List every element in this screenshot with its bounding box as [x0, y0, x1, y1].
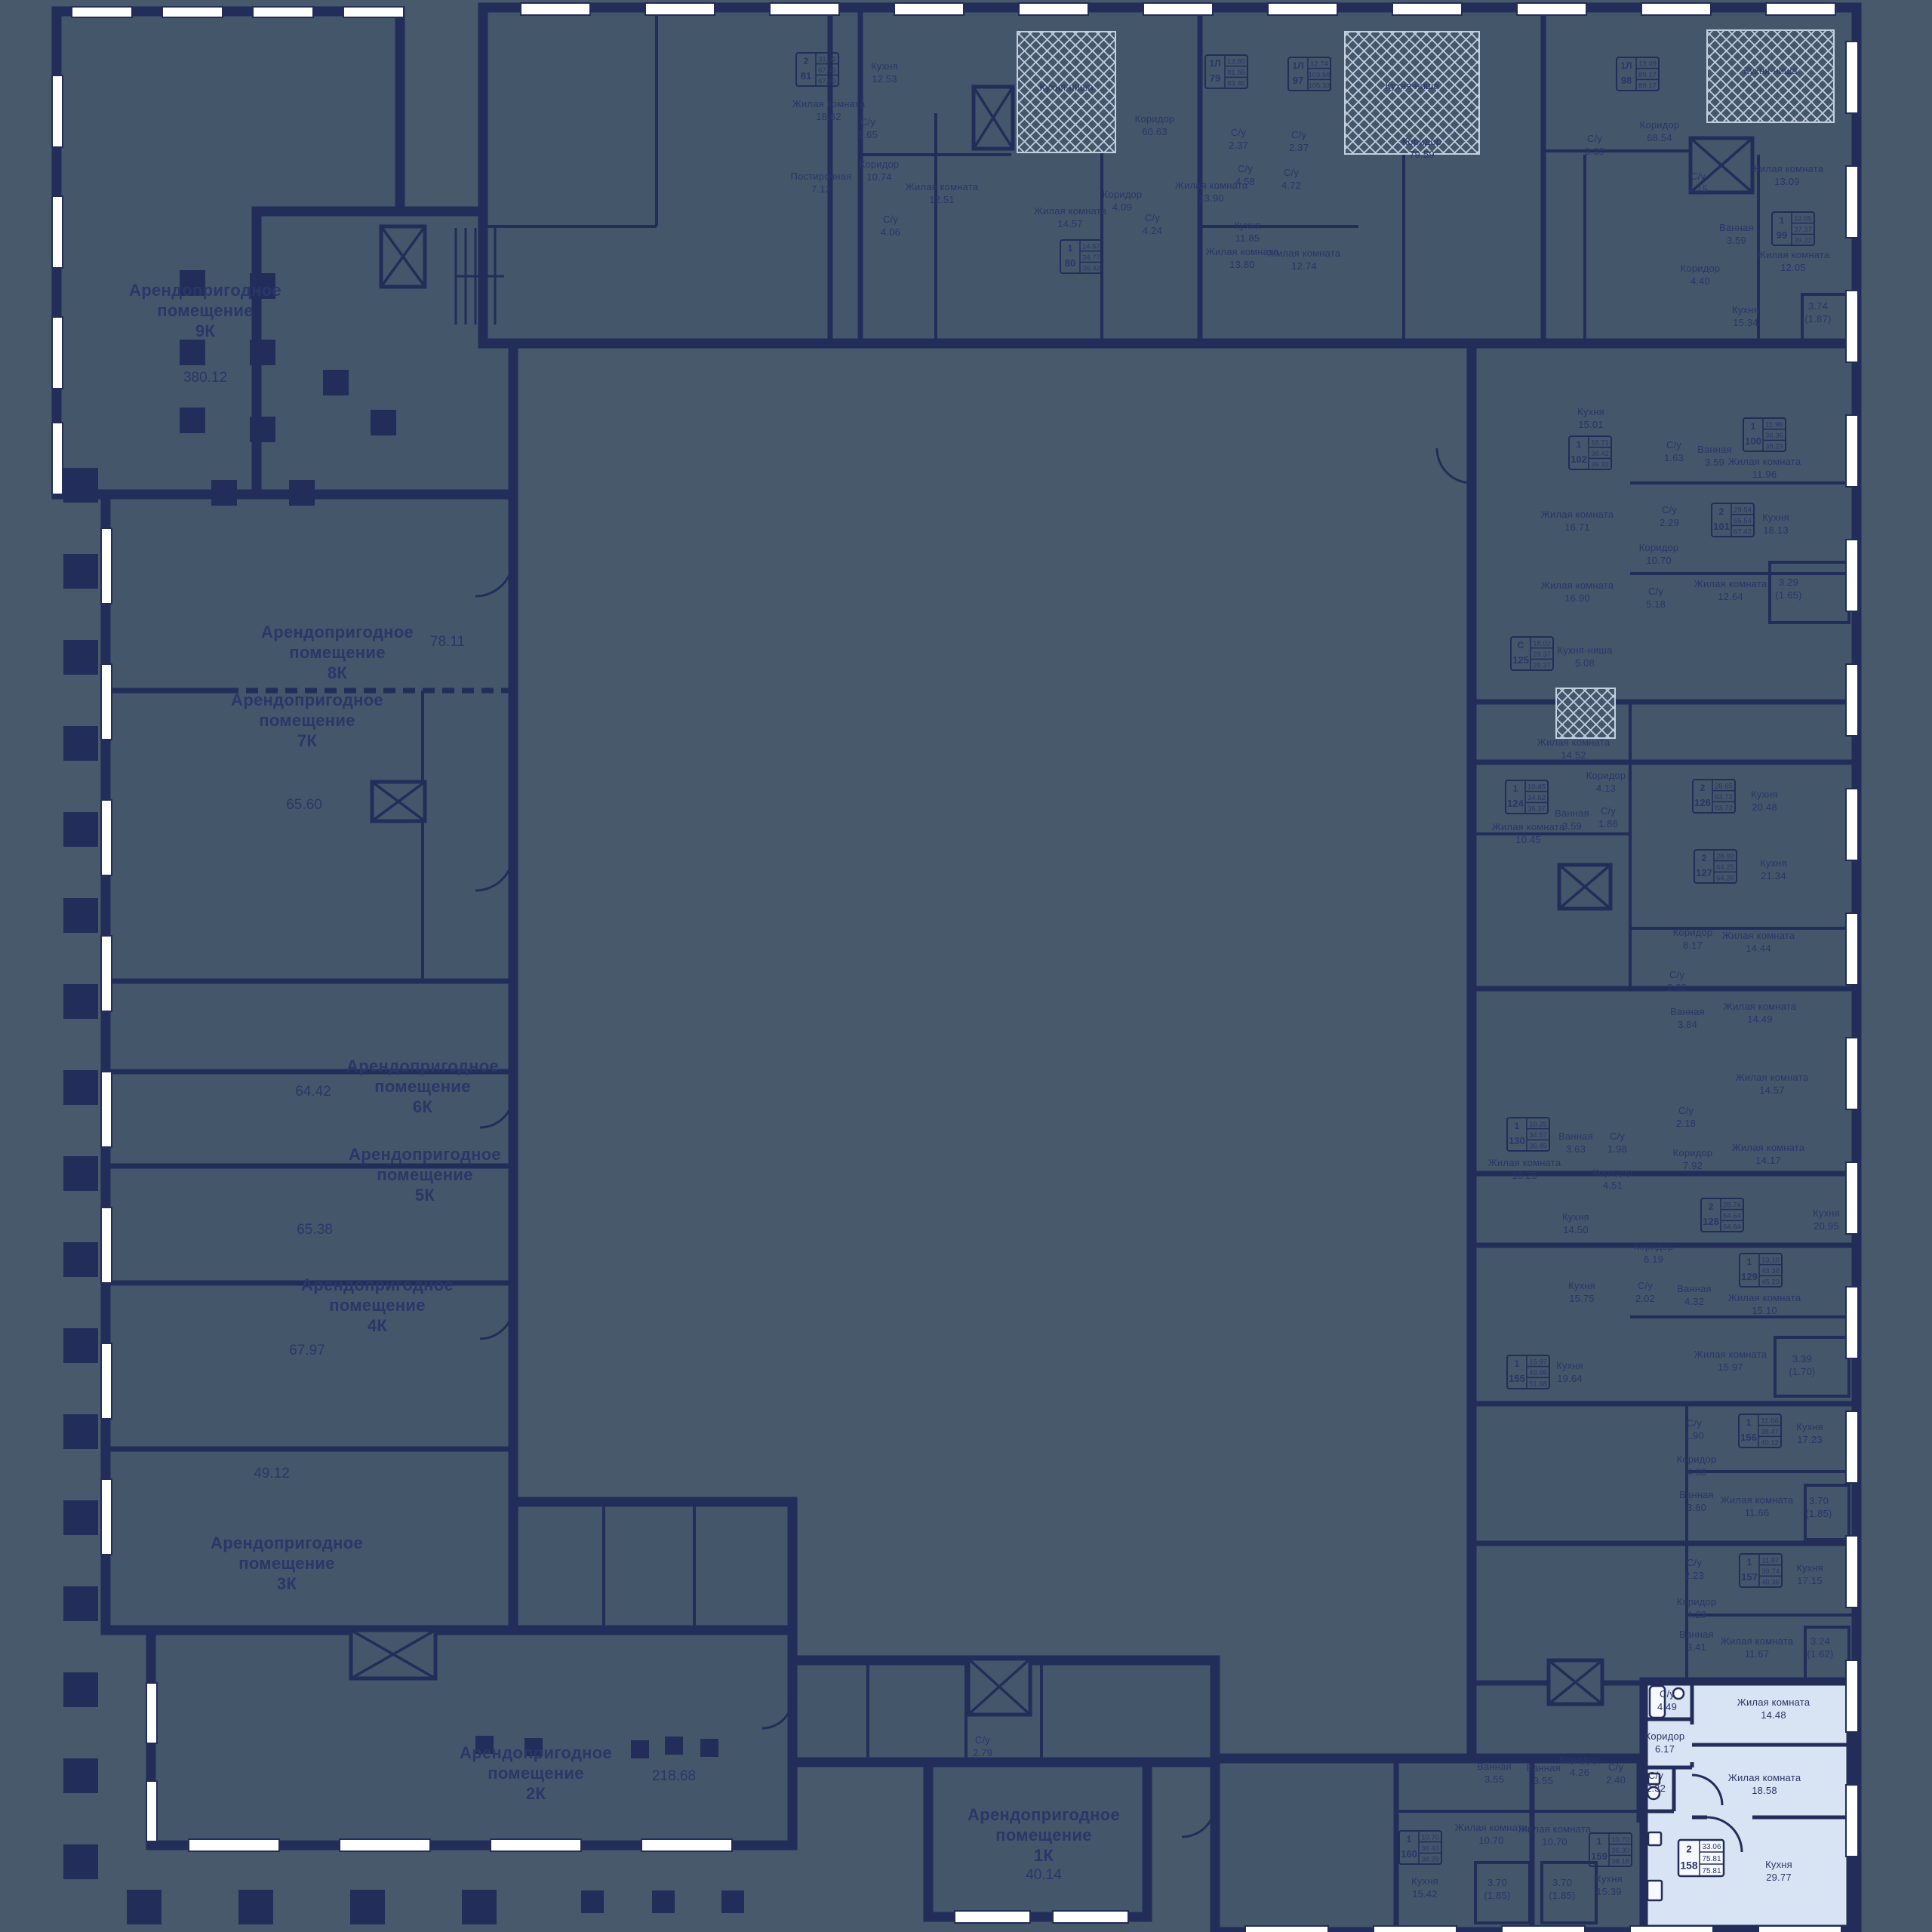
rentable-area: 40.14 — [1026, 1867, 1062, 1883]
room-area: 4.29 — [1687, 1609, 1706, 1620]
room-area: 18.13 — [1763, 525, 1789, 536]
apartment-number: 81 — [801, 70, 811, 82]
room-name: Коридор — [860, 158, 900, 170]
window — [1846, 789, 1858, 860]
apartment-area-2: 65.54 — [1734, 517, 1752, 525]
room-area: (1.87) — [1804, 313, 1831, 325]
room-area: 4.26 — [1570, 1767, 1589, 1778]
room-area: 2.23 — [1684, 1570, 1704, 1581]
room-area: 4.09 — [1112, 202, 1132, 213]
room-area: 1.98 — [1607, 1143, 1627, 1155]
window — [955, 1911, 1030, 1923]
room-area: 15.10 — [1752, 1305, 1777, 1316]
rentable-area: 218.68 — [652, 1768, 696, 1784]
apartment-rooms-count: 1 — [1513, 783, 1518, 794]
room-name: Жилая комната — [1722, 930, 1795, 941]
apartment-area-1: 28.92 — [1716, 852, 1734, 860]
room-area: 4.58 — [1235, 176, 1255, 187]
structural-column — [250, 417, 275, 442]
rentable-line2: помещение — [374, 1077, 471, 1096]
room-name: Жилая комната — [1541, 509, 1614, 520]
room-name: Жилая комната — [1537, 737, 1611, 748]
window — [770, 3, 839, 15]
window — [162, 7, 223, 17]
apartment-area-1: 12.05 — [1794, 214, 1812, 223]
room-area: 5.18 — [1646, 598, 1666, 610]
window — [101, 664, 112, 740]
room-name: Ванная — [1555, 808, 1589, 819]
rentable-line1: Арендопригодное — [968, 1805, 1120, 1824]
room-name: 3.70 — [1487, 1877, 1507, 1888]
apartment-rooms-count: 1 — [1747, 1257, 1752, 1267]
room-area: (1.70) — [1789, 1366, 1815, 1377]
apartment-area-2: 38.42 — [1591, 450, 1609, 458]
structural-column — [63, 1844, 98, 1879]
rentable-line1: Арендопригодное — [211, 1534, 363, 1552]
room-area: 2.40 — [1606, 1774, 1626, 1786]
room-area: 10.70 — [1478, 1835, 1504, 1846]
room-area: 10.25 — [1512, 1170, 1537, 1181]
room-area: 1.65 — [858, 129, 878, 140]
apartment-rooms-count: С — [1518, 640, 1524, 651]
floor-plan-svg: Кухня-нишаКухня-нишаКухня-ниша Кухня12.5… — [0, 0, 1932, 1932]
window — [52, 75, 63, 147]
apartment-rooms-count: 1 — [1515, 1358, 1520, 1369]
window — [1245, 1926, 1328, 1932]
room-area: 12.53 — [872, 73, 897, 85]
room-name: С/у — [975, 1734, 990, 1746]
apartment-card-158[interactable]: 215833.0675.8175.81 — [1678, 1840, 1724, 1876]
window — [189, 1839, 279, 1851]
structural-column — [63, 640, 98, 675]
room-name: Ванная — [1719, 222, 1754, 233]
room-area: 17.15 — [1797, 1575, 1823, 1586]
room-name: С/у — [1610, 1131, 1625, 1142]
room-name: С/у — [1660, 1688, 1675, 1700]
sink-icon — [1673, 1688, 1684, 1699]
rentable-line2: помещение — [259, 711, 355, 730]
room-name: Жилая комната — [1728, 1772, 1801, 1783]
apartment-area-1: 14.57 — [1082, 242, 1100, 251]
structural-column — [63, 1328, 98, 1363]
room-area: 3.63 — [1566, 1143, 1586, 1155]
window — [343, 7, 404, 17]
apartment-area-1: 31.33 — [818, 55, 836, 63]
window — [101, 1343, 112, 1419]
room-area: 14.52 — [1561, 749, 1586, 761]
room-area: 14.49 — [1747, 1014, 1773, 1025]
room-area: 3.60 — [1687, 1502, 1706, 1513]
room-name: Ванная — [1477, 1761, 1512, 1772]
rentable-area: 67.97 — [289, 1343, 325, 1358]
room-name: Кухня — [1765, 1859, 1792, 1870]
apartment-area-1: 13.09 — [1638, 60, 1657, 68]
structural-column — [63, 726, 98, 761]
window — [1766, 3, 1835, 15]
room-area: 15.01 — [1578, 419, 1604, 430]
room-area: 6.17 — [1655, 1743, 1675, 1755]
apartment-area-2: 37.37 — [1794, 226, 1812, 234]
window — [1846, 42, 1858, 113]
apartment-area-1: 11.96 — [1765, 420, 1783, 429]
room-area: 4.40 — [1690, 275, 1710, 287]
room-name: С/у — [1238, 163, 1253, 174]
window — [1846, 415, 1858, 487]
rentable-unit: 9К — [195, 321, 216, 340]
window — [1630, 1926, 1713, 1932]
window — [1641, 3, 1711, 15]
apartment-number: 97 — [1293, 75, 1303, 86]
window — [101, 1072, 112, 1147]
room-area: 18.62 — [816, 111, 841, 122]
room-name: Кухня — [1751, 789, 1778, 800]
room-name: Коридор — [1640, 119, 1680, 131]
rentable-line2: помещение — [289, 643, 386, 662]
apartment-area-3: 40.12 — [1761, 1439, 1779, 1447]
room-name: Коридор — [1560, 1754, 1600, 1765]
room-name: Жилая комната — [1757, 249, 1830, 260]
apartment-number: 79 — [1210, 72, 1220, 84]
structural-column — [63, 1414, 98, 1449]
room-name: Кухня — [1234, 220, 1261, 231]
rentable-area: 65.38 — [297, 1222, 333, 1238]
room-name: Коридор — [1673, 927, 1713, 938]
room-area: 16.71 — [1564, 521, 1590, 533]
apartment-area-1: 10.45 — [1527, 783, 1546, 791]
room-name: Жилая комната — [1751, 163, 1824, 174]
window — [1846, 1038, 1858, 1109]
window — [101, 800, 112, 875]
room-name: Кухня — [1577, 406, 1604, 417]
apartment-area-3: 67.43 — [818, 78, 836, 86]
window — [101, 1207, 112, 1283]
room-name: Кухня — [1762, 512, 1789, 523]
room-name: 3.24 — [1810, 1635, 1830, 1647]
apartment-number: 156 — [1740, 1432, 1757, 1443]
rentable-unit: 1К — [1034, 1846, 1054, 1865]
apartment-number: 160 — [1401, 1848, 1417, 1860]
window — [101, 936, 112, 1011]
apartment-area-3: 105.33 — [1308, 82, 1330, 91]
window — [1758, 1926, 1841, 1932]
room-area: 1.86 — [1598, 818, 1618, 829]
apartment-area-3: 64.64 — [1723, 1223, 1741, 1232]
apartment-area-2: 34.62 — [1527, 794, 1546, 802]
apartment-area-2: 64.25 — [1716, 863, 1734, 872]
apartment-area-1: 10.70 — [1421, 1833, 1439, 1841]
structural-column — [250, 340, 275, 365]
apartment-rooms-count: 2 — [1702, 853, 1707, 863]
apartment-rooms-count: 2 — [804, 56, 809, 66]
room-area: 11.85 — [1235, 232, 1260, 244]
room-name: Кухня — [1732, 304, 1759, 315]
apartment-area-3: 64.26 — [1716, 875, 1734, 883]
apartment-area-2: 34.77 — [1082, 254, 1100, 262]
room-name: С/у — [1231, 127, 1246, 138]
room-area: 3.55 — [1484, 1774, 1504, 1785]
rentable-unit: 8К — [328, 663, 348, 682]
window — [101, 528, 112, 604]
room-name: Ванная — [1558, 1131, 1593, 1142]
apartment-number: 157 — [1741, 1571, 1758, 1583]
apartment-area-3: 45.23 — [1761, 1278, 1780, 1287]
rentable-line1: Арендопригодное — [301, 1275, 454, 1294]
room-name: С/у — [1587, 133, 1602, 144]
window — [253, 7, 313, 17]
room-name: Жилая комната — [1268, 248, 1341, 259]
window — [1374, 1926, 1457, 1932]
room-area: 4.32 — [1684, 1296, 1704, 1307]
room-name: Ванная — [1697, 444, 1732, 455]
room-name: Ванная — [1526, 1762, 1561, 1774]
window — [340, 1839, 430, 1851]
room-name: 3.70 — [1809, 1495, 1829, 1506]
rentable-line2: помещение — [157, 301, 254, 320]
room-area: 19.64 — [1557, 1373, 1583, 1384]
room-name: Жилая комната — [1034, 205, 1107, 217]
window — [52, 423, 63, 494]
room-area: 10.74 — [866, 171, 892, 183]
room-name: Коридор — [1103, 189, 1143, 200]
apartment-area-3: 36.37 — [1527, 805, 1546, 814]
apartment-number: 124 — [1507, 798, 1524, 809]
room-area: 10.70 — [1542, 1836, 1567, 1847]
apartment-rooms-count: 1 — [1780, 215, 1785, 226]
rentable-line2: помещение — [995, 1826, 1092, 1844]
structural-column — [665, 1737, 683, 1755]
room-area: 14.17 — [1755, 1155, 1781, 1166]
kitchen-niche-hatch — [1556, 688, 1615, 738]
room-name: Ванная — [1679, 1489, 1714, 1500]
room-area: 7.92 — [1683, 1160, 1703, 1171]
room-name: Коридор — [1681, 263, 1721, 274]
room-area: 60.63 — [1142, 126, 1168, 137]
room-name: Коридор — [1677, 1454, 1717, 1465]
apartment-area-3: 36.42 — [1082, 265, 1100, 273]
room-area: 12.05 — [1780, 262, 1806, 273]
rentable-line1: Арендопригодное — [231, 691, 383, 709]
room-name: 3.74 — [1808, 300, 1828, 312]
room-area: 7.12 — [811, 183, 831, 195]
rentable-area: 380.12 — [183, 370, 227, 386]
rentable-line2: помещение — [488, 1764, 584, 1783]
rentable-line2: помещение — [329, 1296, 426, 1315]
structural-column — [371, 410, 396, 435]
apartment-rooms-count: 1 — [1597, 1836, 1602, 1847]
room-area: 4.06 — [881, 226, 900, 238]
kitchen-niche-label: Кухня-ниша — [1743, 65, 1798, 76]
kitchen-niche-label: Кухня-ниша — [1385, 80, 1439, 91]
structural-column — [63, 1500, 98, 1535]
room-name: Жилая комната — [1721, 1635, 1794, 1647]
room-area: 5.08 — [1575, 657, 1595, 669]
room-name: Жилая комната — [1732, 1142, 1805, 1153]
room-name: Кухня-ниша — [1557, 645, 1613, 656]
window — [1846, 1411, 1858, 1483]
room-name: С/у — [1291, 129, 1306, 140]
room-name: Коридор — [1593, 1167, 1633, 1178]
apartment-number: 98 — [1621, 75, 1632, 86]
room-area: 3.35 — [1585, 146, 1604, 157]
rentable-area: 64.42 — [295, 1084, 331, 1100]
window — [1019, 3, 1088, 15]
apartment-area-3: 63.72 — [1715, 804, 1733, 813]
apartment-rooms-count: 1 — [1751, 421, 1756, 432]
room-name: Коридор — [1586, 770, 1626, 781]
apartment-rooms-count: 2 — [1686, 1843, 1691, 1854]
apartment-rooms-count: 1Л — [1292, 60, 1303, 71]
apartment-number: 99 — [1777, 229, 1787, 241]
kitchen-niche-label: Кухня-ниша — [1039, 82, 1094, 93]
structural-column — [63, 1758, 98, 1793]
room-name: Жилая комната — [1728, 456, 1801, 467]
room-area: 10.70 — [1646, 555, 1672, 566]
apartment-area-2: 103.58 — [1308, 71, 1330, 79]
room-area: 1.63 — [1664, 452, 1684, 463]
apartment-area-3: 75.81 — [1702, 1867, 1721, 1875]
apartment-area-3: 89.17 — [1638, 82, 1657, 91]
structural-column — [63, 984, 98, 1019]
structural-column — [63, 1242, 98, 1277]
window — [1392, 3, 1462, 15]
window — [52, 196, 63, 268]
apartment-area-2: 29.37 — [1533, 651, 1551, 659]
window — [146, 1781, 157, 1841]
room-area: (1.85) — [1805, 1508, 1832, 1519]
window — [641, 1839, 732, 1851]
room-area: 21.34 — [1761, 870, 1786, 881]
room-area: 11.96 — [1752, 469, 1777, 480]
room-area: 13.80 — [1229, 259, 1255, 270]
apartment-area-3: 38.18 — [1611, 1858, 1629, 1866]
window — [1502, 1926, 1585, 1932]
structural-column — [180, 340, 205, 365]
room-name: Жилая комната — [1721, 1494, 1794, 1506]
room-name: Ванная — [1670, 1006, 1705, 1017]
room-area: 12.64 — [1718, 591, 1743, 602]
room-area: 8.17 — [1683, 940, 1703, 951]
room-area: 3.84 — [1678, 1019, 1697, 1030]
structural-column — [63, 898, 98, 933]
structural-column — [721, 1890, 744, 1913]
apartment-number: 129 — [1741, 1271, 1758, 1282]
rentable-unit: 4К — [368, 1316, 388, 1335]
apartment-area-3: 67.42 — [1734, 528, 1752, 537]
room-area: 14.48 — [1761, 1709, 1786, 1721]
room-area: 13.09 — [1774, 176, 1800, 187]
structural-column — [63, 1156, 98, 1191]
room-area: 11.67 — [1745, 1648, 1770, 1660]
room-area: 4.49 — [1657, 1701, 1677, 1712]
apartment-number: 159 — [1591, 1850, 1607, 1862]
room-name: С/у — [1678, 1105, 1694, 1116]
room-area: 15.42 — [1412, 1888, 1438, 1900]
room-name: Жилая комната — [1724, 1001, 1797, 1012]
window — [894, 3, 964, 15]
structural-column — [63, 468, 98, 503]
apartment-number: 155 — [1509, 1373, 1525, 1384]
room-name: Кухня — [871, 60, 898, 72]
window — [1846, 664, 1858, 736]
structural-column — [211, 480, 237, 506]
floorplan-page: Кухня-нишаКухня-нишаКухня-ниша Кухня12.5… — [0, 0, 1932, 1932]
room-name: Жилая комната — [1694, 578, 1767, 589]
room-area: 79.59 — [1409, 149, 1435, 160]
apartment-rooms-count: 2 — [1700, 783, 1706, 793]
room-name: С/у — [1662, 504, 1677, 515]
apartment-area-2: 34.57 — [1529, 1131, 1547, 1140]
apartment-number: 100 — [1745, 435, 1761, 447]
room-area: 15.75 — [1569, 1293, 1595, 1304]
room-area: 14.57 — [1057, 218, 1083, 229]
room-area: 2.02 — [1667, 982, 1687, 993]
stove-icon — [1647, 1881, 1662, 1900]
structural-column — [350, 1890, 385, 1924]
room-area: 2.18 — [1676, 1118, 1696, 1129]
window — [1846, 913, 1858, 985]
room-area: 16.90 — [1564, 592, 1590, 604]
window — [521, 3, 590, 15]
window — [1846, 291, 1858, 362]
room-area: 2.37 — [1289, 142, 1309, 153]
room-name: Коридор — [1135, 113, 1175, 125]
room-name: Ванная — [1677, 1283, 1712, 1294]
apartment-area-1: 11.66 — [1761, 1417, 1778, 1425]
room-name: Коридор — [1402, 136, 1442, 147]
apartment-rooms-count: 2 — [1719, 506, 1724, 517]
room-area: 2.32 — [1646, 1783, 1666, 1794]
apartment-rooms-count: 1 — [1577, 439, 1582, 450]
room-name: Коридор — [1634, 1241, 1674, 1252]
structural-column — [63, 1672, 98, 1707]
room-name: Кухня — [1796, 1562, 1823, 1574]
room-name: Кухня — [1813, 1207, 1840, 1219]
structural-column — [581, 1890, 604, 1913]
room-area: 4.08 — [1687, 1466, 1706, 1478]
room-name: Жилая комната — [1728, 1292, 1801, 1303]
window — [1846, 1536, 1858, 1607]
apartment-area-3: 36.45 — [1529, 1143, 1547, 1151]
apartment-area-3: 83.46 — [1227, 80, 1245, 88]
room-area: 14.50 — [1563, 1224, 1589, 1235]
structural-column — [238, 1890, 273, 1924]
apartment-area-3: 38.23 — [1765, 443, 1783, 451]
room-area: 18.58 — [1752, 1785, 1777, 1796]
room-name: Жилая комната — [1737, 1697, 1810, 1708]
structural-column — [63, 1070, 98, 1105]
window — [645, 3, 715, 15]
structural-column — [323, 370, 349, 395]
room-name: Жилая комната — [1541, 580, 1614, 591]
room-name: Постирочная — [791, 171, 852, 182]
room-area: 6.19 — [1644, 1254, 1663, 1265]
room-name: Коридор — [1645, 1730, 1685, 1742]
room-name: Кухня — [1411, 1875, 1438, 1887]
apartment-area-2: 81.55 — [1227, 69, 1245, 77]
room-name: Коридор — [1639, 542, 1679, 553]
apartment-area-2: 75.81 — [1702, 1855, 1721, 1863]
room-area: 14.57 — [1759, 1084, 1785, 1096]
apartment-number: 80 — [1065, 257, 1075, 269]
apartment-area-2: 43.38 — [1761, 1267, 1780, 1275]
apartment-area-2: 49.95 — [1529, 1369, 1547, 1377]
selected-apartment-area[interactable] — [1644, 1681, 1850, 1929]
room-area: (1.62) — [1807, 1648, 1833, 1660]
room-name: С/у — [1648, 1770, 1663, 1781]
room-area: 20.95 — [1814, 1220, 1839, 1232]
apartment-area-3: 51.68 — [1529, 1380, 1547, 1389]
room-name: Жилая комната — [792, 98, 866, 109]
